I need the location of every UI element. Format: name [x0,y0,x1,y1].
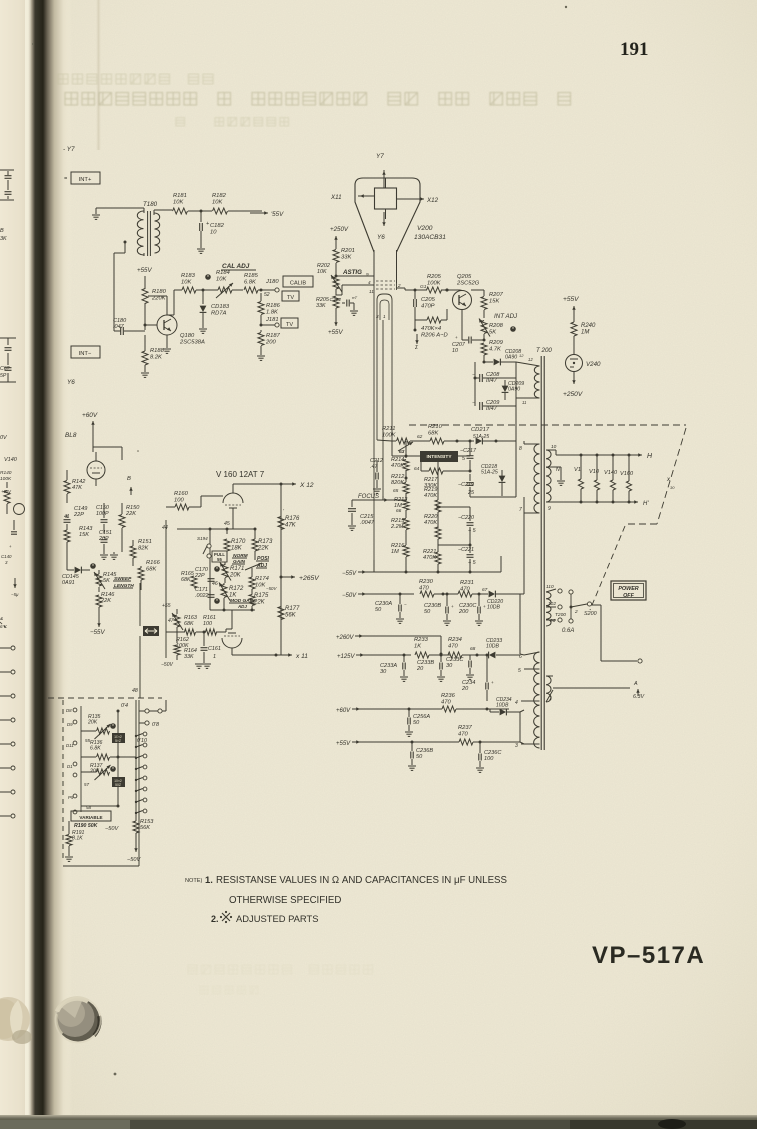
svg-text:−55V: −55V [342,571,357,577]
svg-text:110: 110 [546,584,554,590]
svg-text:πT: πT [352,295,358,300]
svg-text:−C221: −C221 [458,547,474,553]
svg-text:57: 57 [84,782,90,787]
svg-text:G1: G1 [420,284,427,290]
svg-text:−50V: −50V [161,662,173,668]
svg-text:15K: 15K [489,298,500,304]
svg-text:C233C: C233C [446,657,464,663]
svg-text:470: 470 [448,643,458,649]
svg-text:200: 200 [458,609,469,615]
svg-text:R237: R237 [458,725,473,731]
svg-text:+: + [451,604,454,609]
svg-text:VARIABLE: VARIABLE [79,815,102,820]
svg-text:Q205: Q205 [457,274,472,280]
svg-text:−50V: −50V [342,593,357,599]
svg-text:R166: R166 [146,560,161,566]
svg-text:H': H' [643,501,649,507]
svg-text:CAL ADJ: CAL ADJ [222,263,250,270]
svg-text:+250V: +250V [563,391,583,398]
svg-text:470: 470 [419,585,429,591]
svg-text:R231: R231 [460,580,474,586]
svg-text:+ 5: + 5 [468,528,477,534]
svg-text:22K: 22K [100,598,111,604]
svg-text:V1: V1 [574,467,581,473]
svg-text:65: 65 [393,488,399,494]
svg-text:R172: R172 [229,586,244,592]
svg-text:+: + [491,680,494,685]
svg-text:*: * [112,724,114,730]
svg-text:10DB: 10DB [486,644,500,650]
svg-text:50: 50 [416,754,423,760]
svg-text:6.3V: 6.3V [633,694,645,700]
svg-text:R174: R174 [255,576,269,582]
svg-text:10DB: 10DB [496,703,509,709]
svg-text:V200: V200 [417,225,433,232]
svg-text:11: 11 [522,400,526,405]
svg-text:51A-25: 51A-25 [473,434,489,440]
svg-text:R234: R234 [448,637,462,643]
svg-text:R146: R146 [101,592,115,598]
svg-text:C256A: C256A [413,714,430,720]
svg-text:R143: R143 [79,526,93,532]
svg-text:50: 50 [375,607,382,613]
svg-text:130ACB31: 130ACB31 [414,234,446,241]
svg-text:R214: R214 [391,457,404,463]
svg-text:C182: C182 [210,223,225,229]
svg-text:15K: 15K [79,532,89,538]
svg-text:10: 10 [452,348,458,354]
svg-text:A: A [633,681,638,687]
svg-text:10: 10 [210,229,217,235]
svg-text:67: 67 [482,587,488,593]
svg-text:B: B [127,476,131,482]
svg-text:100P: 100P [96,511,109,517]
svg-text:+260V: +260V [336,635,355,641]
svg-text:.0047: .0047 [360,520,375,526]
svg-text:−50V: −50V [127,857,141,863]
svg-text:4.7K: 4.7K [489,346,502,352]
svg-text:20P: 20P [98,536,109,542]
svg-text:R185: R185 [244,273,259,279]
svg-text:10K: 10K [317,269,327,275]
svg-text:III47: III47 [486,378,498,384]
svg-text:B: B [0,228,4,234]
svg-text:68K: 68K [184,621,194,627]
svg-text:POWER: POWER [618,586,638,592]
svg-text:C236C: C236C [484,750,502,756]
svg-text:9: 9 [548,506,551,512]
svg-text:R160: R160 [174,491,189,497]
svg-text:50: 50 [413,720,420,726]
svg-text:R171: R171 [230,566,244,572]
svg-text:R170: R170 [231,539,246,545]
svg-text:50: 50 [424,609,431,615]
svg-text:1: 1 [383,314,386,319]
svg-text:R207: R207 [489,292,504,298]
svg-text:OFF: OFF [623,593,634,599]
svg-text:ADJUSTED PARTS: ADJUSTED PARTS [236,913,318,924]
svg-text:0.6A: 0.6A [562,628,574,634]
svg-text:R175: R175 [254,593,269,599]
svg-text:33K: 33K [341,254,352,260]
svg-text:12: 12 [519,353,524,358]
svg-text:7: 7 [519,507,522,513]
svg-text:R220: R220 [424,514,438,520]
svg-text:R184: R184 [216,270,230,276]
svg-text:44: 44 [162,525,168,531]
svg-text:R187: R187 [266,333,281,339]
svg-text:INTENSITY: INTENSITY [426,454,452,460]
svg-text:100: 100 [174,497,184,503]
svg-text:200: 200 [265,339,276,345]
svg-text:S200: S200 [584,611,597,617]
svg-text:20: 20 [416,666,424,672]
svg-text:68: 68 [470,646,476,652]
svg-text:25: 25 [467,490,475,496]
svg-text:41: 41 [64,514,70,520]
svg-text:.047: .047 [113,324,125,330]
svg-text:T180: T180 [143,201,158,208]
svg-text:4: 4 [368,280,371,285]
svg-text:C230C: C230C [459,603,477,609]
svg-text:+125V: +125V [337,654,356,660]
svg-text:8.1K: 8.1K [72,836,83,842]
svg-text:C230A: C230A [375,601,392,607]
svg-text:*: * [112,767,114,773]
svg-text:T200: T200 [555,612,566,618]
svg-text:−50V: −50V [266,586,277,591]
svg-text:12: 12 [528,357,533,362]
svg-text:66: 66 [396,508,402,514]
svg-text:20K: 20K [87,720,98,726]
svg-text:x 11: x 11 [295,653,308,660]
svg-text:INT−: INT− [79,351,92,357]
svg-text:0A91: 0A91 [62,580,75,586]
svg-text:−50V: −50V [105,826,119,832]
svg-text:C161: C161 [208,646,221,652]
svg-text:R173: R173 [258,539,273,545]
svg-text:FOCUS: FOCUS [358,494,379,500]
svg-text:10K: 10K [255,582,266,588]
svg-text:P5: P5 [68,795,74,800]
svg-text:TV: TV [287,295,294,301]
svg-text:11: 11 [369,289,374,294]
svg-text:100K: 100K [0,476,12,482]
svg-text:Y6: Y6 [67,379,75,386]
svg-text:+60V: +60V [82,412,98,419]
svg-text:470K×4: 470K×4 [421,326,441,332]
svg-text:+60V: +60V [336,708,351,714]
svg-text:5: 5 [518,668,521,674]
svg-text:VP–517A: VP–517A [592,942,705,969]
svg-text:R181: R181 [173,193,187,199]
svg-text:C233A: C233A [380,663,397,669]
svg-text:S194: S194 [197,536,208,541]
svg-text:0'8: 0'8 [152,722,159,728]
svg-text:22P: 22P [73,512,84,518]
svg-text:−55V: −55V [90,629,105,636]
svg-text:1: 1 [213,654,216,660]
svg-text:100: 100 [203,621,212,627]
svg-text:R177: R177 [285,606,300,612]
svg-text:RD7A: RD7A [211,310,227,316]
svg-text:56K: 56K [285,613,297,619]
svg-text:100K: 100K [427,280,442,286]
svg-text:0A90: 0A90 [508,387,520,393]
svg-text:V140: V140 [4,457,18,463]
svg-text:C236B: C236B [416,748,433,754]
svg-text:22P: 22P [194,573,205,579]
svg-text:R153: R153 [140,819,154,825]
svg-text:R183: R183 [181,273,196,279]
svg-text:1K: 1K [229,593,237,599]
svg-text:R140: R140 [0,470,12,476]
svg-text:48: 48 [132,688,138,694]
svg-text:10: 10 [551,444,557,450]
svg-text:*: * [216,599,218,605]
svg-text:+60V: +60V [1,489,12,494]
svg-text:1M: 1M [581,330,589,336]
svg-text:OTHERWISE SPECIFIED: OTHERWISE SPECIFIED [229,895,341,906]
svg-text:V 160 12AT 7: V 160 12AT 7 [216,470,265,479]
svg-text:46: 46 [212,581,218,587]
svg-text:NOTE): NOTE) [185,878,203,884]
svg-text:CD183: CD183 [211,304,230,310]
svg-text:J180: J180 [265,279,279,285]
svg-text:*: * [92,564,94,570]
svg-text:T 200: T 200 [536,347,552,354]
svg-text:V10: V10 [589,469,600,475]
svg-text:30: 30 [380,669,387,675]
svg-text:2: 2 [397,283,401,288]
svg-text:2.2M: 2.2M [390,524,404,530]
svg-text:BL8: BL8 [65,432,77,439]
svg-text:8: 8 [519,446,522,452]
svg-text:6.8K: 6.8K [90,746,101,752]
svg-text:1M: 1M [391,549,399,555]
svg-text:470K: 470K [424,493,437,499]
svg-text:10K: 10K [216,276,227,282]
svg-text:3K: 3K [0,236,7,242]
svg-text:2SC538A: 2SC538A [179,339,205,345]
svg-text:10K: 10K [212,199,223,205]
svg-text:96: 96 [550,618,556,624]
svg-text:47: 47 [168,618,174,624]
svg-text:6.8K: 6.8K [244,279,257,285]
svg-text:- Y7: - Y7 [63,146,75,153]
svg-text:R219: R219 [424,487,437,493]
svg-text:TV: TV [286,322,293,328]
svg-text:5K: 5K [489,329,497,335]
svg-text:Y7: Y7 [376,153,384,160]
svg-text:INT ADJ: INT ADJ [494,313,518,320]
svg-text:+55V: +55V [563,296,579,303]
svg-text:2.: 2. [211,914,219,924]
svg-text:R186: R186 [266,303,281,309]
svg-text:R190 50K: R190 50K [74,823,99,829]
svg-text:68K: 68K [181,577,191,583]
svg-text:−C220: −C220 [458,515,474,521]
svg-text:1.8K: 1.8K [266,309,279,315]
svg-text:1K: 1K [414,643,422,649]
svg-text:62: 62 [417,434,423,440]
svg-text:2: 2 [574,609,578,615]
svg-text:52: 52 [264,292,270,298]
svg-text:R151: R151 [138,539,152,545]
svg-text:10K: 10K [173,199,184,205]
svg-text:CALIB: CALIB [290,281,306,287]
svg-text:470: 470 [458,731,468,737]
svg-text:Q180: Q180 [180,333,195,339]
svg-text:C205: C205 [421,297,436,303]
svg-text:47K: 47K [285,523,297,529]
svg-text:3: 3 [376,314,379,319]
svg-text:CD217: CD217 [471,427,490,433]
svg-text:*: * [216,567,218,573]
svg-text:+: + [455,335,458,340]
svg-text:−C217: −C217 [460,448,477,454]
svg-text:D1: D1 [67,764,73,769]
svg-text:C234: C234 [462,680,475,686]
svg-text:470K: 470K [423,555,436,561]
svg-text:56K: 56K [140,825,150,831]
svg-text:1.: 1. [205,874,213,885]
svg-text:III47: III47 [486,406,498,412]
svg-text:+: + [483,604,486,609]
svg-text:R233: R233 [414,637,429,643]
svg-text:1: 1 [549,696,552,702]
svg-text:R212: R212 [391,474,405,480]
svg-text:R221: R221 [423,549,436,555]
svg-text:6 K: 6 K [0,624,8,629]
svg-text:−: − [404,602,407,607]
svg-text:+55V: +55V [336,741,351,747]
svg-text:30: 30 [670,485,675,490]
svg-text:.0022: .0022 [195,593,209,599]
svg-text:45: 45 [224,521,230,527]
svg-text:102: 102 [548,601,556,607]
svg-text:R176: R176 [285,516,300,522]
svg-text:D8: D8 [66,708,72,713]
svg-text:C209: C209 [486,400,499,406]
svg-text:N: N [556,467,560,473]
svg-text:68K: 68K [146,566,157,572]
svg-text:470K: 470K [424,520,437,526]
svg-text:C202: C202 [330,297,342,303]
svg-text:X11: X11 [330,194,342,201]
svg-text:100K: 100K [382,432,397,438]
svg-text:'55V: '55V [271,211,284,218]
svg-text:R182: R182 [212,193,227,199]
svg-text:+265V: +265V [299,575,320,582]
svg-text:C230B: C230B [424,603,441,609]
svg-text:+ 5: + 5 [468,560,477,566]
svg-text:10DB: 10DB [487,605,501,611]
svg-text:INT+: INT+ [79,177,92,183]
svg-text:8.2K: 8.2K [150,354,163,360]
svg-text:22K: 22K [257,546,270,552]
svg-text:191: 191 [620,39,649,60]
svg-text:5P: 5P [0,373,7,379]
svg-text:R180: R180 [152,289,167,295]
svg-text:64: 64 [414,466,420,472]
svg-text:470: 470 [441,699,451,705]
svg-text:33K: 33K [184,654,194,660]
svg-text:R150: R150 [126,505,140,511]
svg-text:30: 30 [446,663,453,669]
svg-text:0A90: 0A90 [505,355,517,361]
svg-text:*: * [207,275,209,281]
svg-text:R205: R205 [427,274,442,280]
svg-text:68K: 68K [428,430,439,436]
svg-text:22K: 22K [125,511,136,517]
svg-text:ADJ: ADJ [237,604,247,609]
svg-text:V240: V240 [586,361,601,368]
svg-text:*: * [512,327,514,333]
svg-text:−5μ: −5μ [11,592,19,597]
svg-text:470P: 470P [421,303,435,309]
svg-text:5K: 5K [103,578,110,584]
svg-text:D11: D11 [66,743,74,748]
svg-text:50Z: 50Z [115,783,121,787]
svg-text:63: 63 [399,449,405,455]
svg-text:47K: 47K [72,485,82,491]
svg-text:X 12: X 12 [299,482,314,489]
svg-text:&: & [0,616,3,621]
svg-text:X12: X12 [426,197,439,204]
svg-text:V140: V140 [604,470,618,476]
svg-text:0'4: 0'4 [121,703,128,709]
svg-text:C233B: C233B [417,660,434,666]
svg-text:R142: R142 [72,479,86,485]
svg-text:100: 100 [484,756,494,762]
svg-text:33K: 33K [316,303,326,309]
svg-text:R188: R188 [150,348,165,354]
svg-text:55: 55 [217,557,222,562]
svg-text:C215: C215 [360,514,374,520]
svg-text:R208: R208 [489,323,504,329]
svg-text:C6?: C6? [0,366,10,372]
svg-text:C149: C149 [74,506,87,512]
svg-text:D9: D9 [67,722,73,727]
svg-text:3: 3 [515,743,518,749]
svg-text:C208: C208 [486,372,500,378]
svg-text:RESISTANSE VALUES IN Ω AND CAP: RESISTANSE VALUES IN Ω AND CAPACITANCES … [216,875,507,886]
svg-text:+55: +55 [162,603,171,609]
svg-text:51A-25: 51A-25 [481,470,498,476]
svg-text:82K: 82K [138,545,149,551]
svg-text:J181: J181 [265,317,279,323]
svg-text:+250V: +250V [330,226,349,233]
svg-text:R206 A~D: R206 A~D [421,332,448,338]
svg-text:C140: C140 [1,554,12,559]
svg-text:2SC52G: 2SC52G [456,280,480,286]
svg-text:20K: 20K [229,573,242,579]
svg-text:R240: R240 [581,323,596,329]
svg-text:ASTIG: ASTIG [342,269,362,276]
svg-text:R230: R230 [419,579,434,585]
svg-text:V160: V160 [620,471,634,477]
svg-text:R209: R209 [489,340,504,346]
svg-text:18K: 18K [231,546,243,552]
svg-text:+55V: +55V [328,329,343,336]
svg-text:R236: R236 [441,693,456,699]
svg-text:R211: R211 [382,426,395,432]
svg-text:R201: R201 [341,248,355,254]
svg-text:20: 20 [461,686,469,692]
svg-text:10K: 10K [181,279,192,285]
svg-text:+55V: +55V [137,267,152,274]
